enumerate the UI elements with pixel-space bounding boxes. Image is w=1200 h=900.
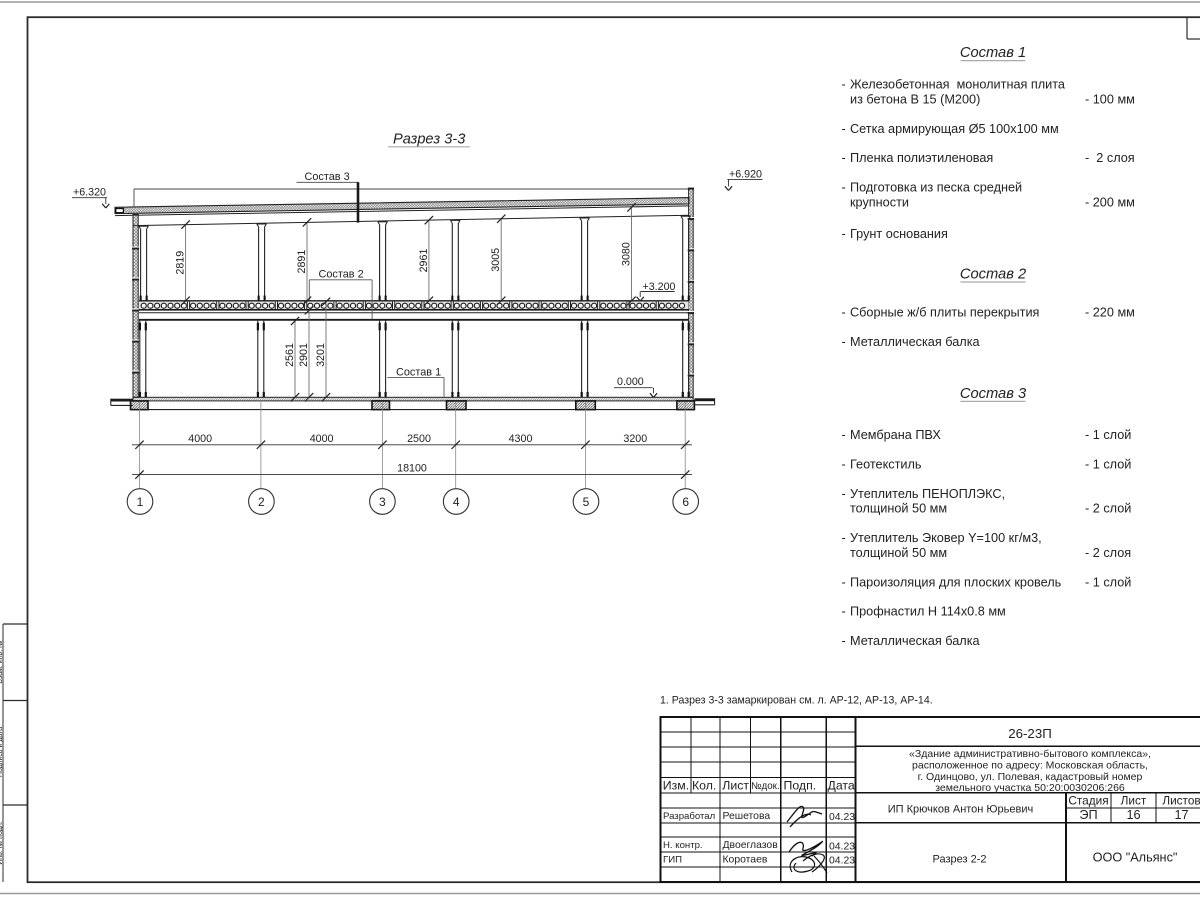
svg-text:Железобетонная монолитная пли: Железобетонная монолитная плита: [850, 78, 1066, 92]
svg-text:16: 16: [1126, 808, 1140, 822]
svg-text:-: -: [842, 227, 846, 241]
svg-text:Подп.: Подп.: [784, 779, 817, 793]
svg-text:04.23: 04.23: [829, 841, 855, 852]
svg-text:ЭП: ЭП: [1079, 808, 1097, 822]
svg-text:2901: 2901: [298, 343, 310, 367]
svg-text:-: -: [842, 531, 846, 545]
svg-text:-: -: [842, 487, 846, 501]
svg-text:- 100 мм: - 100 мм: [1085, 92, 1135, 106]
svg-text:-: -: [842, 575, 846, 589]
svg-text:4: 4: [453, 495, 460, 509]
svg-text:№док.: №док.: [751, 781, 780, 792]
svg-text:3005: 3005: [490, 248, 502, 272]
svg-text:2819: 2819: [175, 251, 187, 275]
svg-text:2: 2: [258, 495, 265, 509]
svg-text:крупности: крупности: [850, 195, 909, 209]
svg-text:4000: 4000: [188, 433, 212, 445]
svg-text:Лист: Лист: [722, 779, 749, 793]
svg-text:Подготовка из песка средней: Подготовка из песка средней: [850, 181, 1022, 195]
svg-text:Изм.: Изм.: [663, 779, 689, 793]
svg-text:04.23: 04.23: [829, 812, 855, 823]
svg-text:толщиной 50 мм: толщиной 50 мм: [850, 502, 947, 516]
svg-text:Состав 2: Состав 2: [319, 269, 364, 281]
svg-text:- 200 мм: - 200 мм: [1085, 195, 1135, 209]
svg-text:Дата: Дата: [828, 779, 855, 793]
svg-text:6: 6: [682, 495, 689, 509]
svg-text:17: 17: [1174, 808, 1188, 822]
svg-text:-: -: [842, 305, 846, 319]
svg-text:-: -: [842, 335, 846, 349]
svg-text:- 220 мм: - 220 мм: [1085, 305, 1135, 319]
svg-text:2891: 2891: [296, 250, 308, 274]
svg-text:Разработал: Разработал: [663, 811, 715, 822]
svg-text:Профнастил Н 114х0.8 мм: Профнастил Н 114х0.8 мм: [850, 605, 1006, 619]
svg-text:Металлическая балка: Металлическая балка: [850, 335, 981, 349]
svg-text:толщиной 50 мм: толщиной 50 мм: [850, 546, 947, 560]
svg-text:- 1 слой: - 1 слой: [1085, 575, 1131, 589]
svg-text:-: -: [842, 634, 846, 648]
svg-text:Утеплитель ПЕНОПЛЭКС,: Утеплитель ПЕНОПЛЭКС,: [850, 487, 1005, 501]
svg-text:Геотекстиль: Геотекстиль: [850, 457, 922, 471]
svg-text:Состав 3: Состав 3: [305, 171, 350, 183]
svg-text:-: -: [842, 78, 846, 92]
svg-text:Разрез 2-2: Разрез 2-2: [932, 854, 986, 866]
svg-text:4000: 4000: [310, 433, 334, 445]
svg-text:Сборные ж/б плиты перекрытия: Сборные ж/б плиты перекрытия: [850, 305, 1039, 319]
svg-text:земельного участка 50:20:00302: земельного участка 50:20:0030206:266: [935, 782, 1125, 794]
svg-text:04.23: 04.23: [829, 856, 855, 867]
svg-text:Утеплитель Эковер Y=100 кг/м3,: Утеплитель Эковер Y=100 кг/м3,: [850, 531, 1042, 545]
svg-text:- 1 слой: - 1 слой: [1085, 428, 1131, 442]
svg-text:3201: 3201: [315, 343, 327, 367]
svg-text:+6.320: +6.320: [73, 187, 106, 199]
svg-text:Двоеглазов: Двоеглазов: [723, 840, 779, 851]
svg-text:18100: 18100: [397, 462, 427, 474]
svg-text:Стадия: Стадия: [1068, 794, 1108, 808]
svg-text:Состав 1: Состав 1: [960, 45, 1026, 61]
svg-text:Н. контр.: Н. контр.: [663, 840, 703, 851]
svg-text:- 1 слой: - 1 слой: [1085, 457, 1131, 471]
svg-text:Сетка армирующая Ø5 100х100 мм: Сетка армирующая Ø5 100х100 мм: [850, 122, 1059, 136]
svg-text:-: -: [842, 457, 846, 471]
svg-text:ИП Крючков Антон Юрьевич: ИП Крючков Антон Юрьевич: [888, 804, 1033, 816]
svg-text:5: 5: [583, 495, 590, 509]
svg-text:Подпись и дата: Подпись и дата: [0, 727, 4, 777]
svg-text:- 2 слоя: - 2 слоя: [1085, 151, 1135, 165]
svg-text:-: -: [842, 122, 846, 136]
svg-text:ГИП: ГИП: [663, 854, 682, 865]
svg-text:Состав 1: Состав 1: [396, 366, 441, 378]
svg-text:Коротаев: Коротаев: [723, 854, 768, 865]
svg-text:Листов: Листов: [1162, 794, 1200, 808]
svg-text:1: 1: [137, 495, 144, 509]
svg-text:расположенное по адресу: Моско: расположенное по адресу: Московская обла…: [912, 760, 1148, 772]
svg-text:Пленка полиэтиленовая: Пленка полиэтиленовая: [850, 151, 993, 165]
svg-text:4300: 4300: [509, 433, 533, 445]
svg-text:0.000: 0.000: [617, 376, 644, 388]
svg-text:3200: 3200: [623, 433, 647, 445]
svg-text:3: 3: [379, 495, 386, 509]
svg-text:Состав 3: Состав 3: [960, 386, 1027, 402]
svg-text:Мембрана ПВХ: Мембрана ПВХ: [850, 428, 941, 442]
svg-text:Решетова: Решетова: [723, 811, 771, 822]
svg-text:Грунт основания: Грунт основания: [850, 227, 948, 241]
svg-text:«Здание административно-бытово: «Здание административно-бытового комплек…: [909, 748, 1151, 760]
svg-text:- 2 слой: - 2 слой: [1085, 502, 1131, 516]
svg-text:Пароизоляция для плоских крове: Пароизоляция для плоских кровель: [850, 575, 1062, 589]
svg-text:2561: 2561: [284, 343, 296, 367]
svg-text:-: -: [842, 428, 846, 442]
svg-text:Разрез 3-3: Разрез 3-3: [393, 132, 465, 148]
svg-text:Инв. № подл.: Инв. № подл.: [0, 821, 4, 865]
svg-text:-: -: [842, 151, 846, 165]
svg-text:Взам. инв. №: Взам. инв. №: [0, 640, 4, 683]
svg-text:Кол.: Кол.: [692, 779, 716, 793]
svg-text:- 2 слоя: - 2 слоя: [1085, 546, 1131, 560]
svg-text:Состав 2: Состав 2: [960, 267, 1026, 283]
svg-text:из бетона В 15 (М200): из бетона В 15 (М200): [850, 92, 980, 106]
svg-text:3080: 3080: [621, 242, 633, 266]
svg-text:+6.920: +6.920: [729, 168, 762, 180]
svg-text:2500: 2500: [407, 433, 431, 445]
svg-text:-: -: [842, 605, 846, 619]
svg-text:ООО "Альянс": ООО "Альянс": [1093, 850, 1178, 864]
svg-text:Металлическая балка: Металлическая балка: [850, 634, 981, 648]
svg-text:1. Разрез 3-3 замаркирован см.: 1. Разрез 3-3 замаркирован см. л. АР-12,…: [660, 694, 933, 706]
svg-text:Лист: Лист: [1121, 794, 1147, 808]
svg-text:2961: 2961: [418, 249, 430, 273]
svg-text:26-23П: 26-23П: [1008, 726, 1052, 741]
svg-text:-: -: [842, 181, 846, 195]
